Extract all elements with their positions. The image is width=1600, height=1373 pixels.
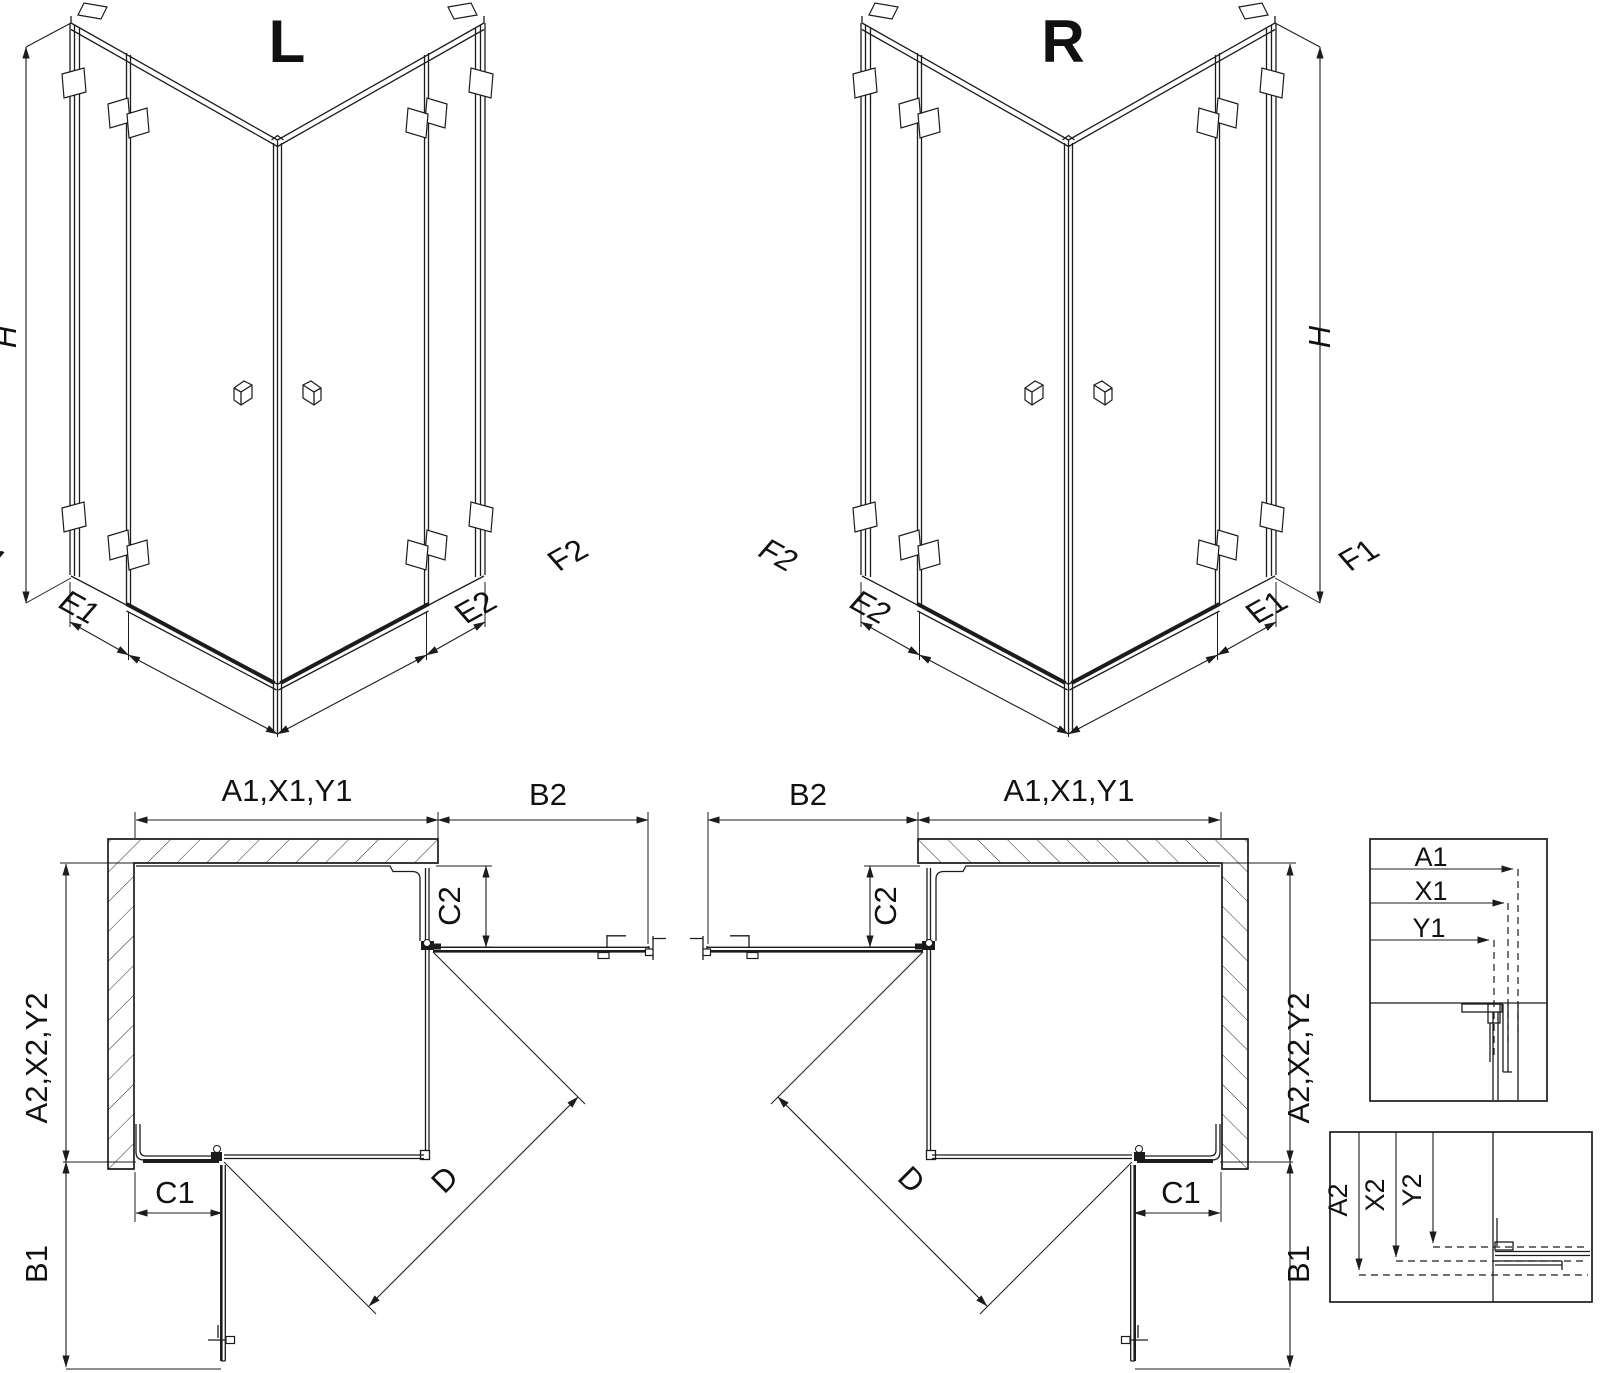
height-dim-label: H — [0, 325, 23, 348]
dim-e2: E2 — [842, 585, 898, 630]
detail-dim-a2: A2 — [1323, 1183, 1353, 1216]
dim-b2: B2 — [789, 777, 827, 812]
dim-f1: F1 — [0, 533, 15, 577]
dim-e1: E1 — [1238, 585, 1294, 630]
detail-dim-x2: X2 — [1360, 1178, 1390, 1211]
dim-b1: B1 — [1281, 1245, 1316, 1283]
plan-view-left: A1,X1,Y1 B2 C2 A2,X2,Y2 C1 B1 D — [19, 773, 666, 1369]
dim-c2: C2 — [432, 886, 467, 926]
dim-f1: F1 — [1331, 533, 1386, 577]
dim-d: D — [891, 1159, 932, 1200]
dim-c1: C1 — [155, 1175, 195, 1210]
iso-view-left: L H F1 E1 E2 F2 — [0, 3, 595, 737]
detail-dim-y1: Y1 — [1412, 913, 1445, 943]
dim-d: D — [424, 1159, 465, 1200]
detail-dim-a1: A1 — [1414, 842, 1447, 872]
detail-view-bottom: A2 X2 Y2 — [1323, 1132, 1592, 1302]
dim-a2x2y2: A2,X2,Y2 — [19, 993, 54, 1124]
technical-drawing-canvas: L H F1 E1 E2 F2 R H F2 E2 E1 F1 A1,X1,Y1… — [0, 0, 1600, 1373]
height-dim-label: H — [1302, 325, 1337, 348]
dim-c2: C2 — [868, 886, 903, 926]
dim-f2: F2 — [751, 533, 806, 577]
dim-f2: F2 — [540, 533, 595, 577]
detail-view-top: A1 X1 Y1 — [1370, 839, 1547, 1101]
dim-b2: B2 — [529, 777, 567, 812]
plan-view-right: A1,X1,Y1 B2 C2 A2,X2,Y2 C1 B1 D — [690, 773, 1316, 1369]
iso-view-right: R H F2 E2 E1 F1 — [751, 3, 1386, 737]
drawing-sheet: L H F1 E1 E2 F2 R H F2 E2 E1 F1 A1,X1,Y1… — [0, 0, 1600, 1373]
dim-e2: E2 — [447, 585, 503, 630]
dim-a1x1y1: A1,X1,Y1 — [222, 773, 353, 808]
variant-label-left: L — [269, 8, 306, 75]
detail-dim-x1: X1 — [1414, 876, 1447, 906]
dim-a2x2y2: A2,X2,Y2 — [1281, 993, 1316, 1124]
dim-a1x1y1: A1,X1,Y1 — [1004, 773, 1135, 808]
dim-c1: C1 — [1161, 1175, 1201, 1210]
dim-b1: B1 — [19, 1245, 54, 1283]
variant-label-right: R — [1041, 8, 1084, 75]
detail-dim-y2: Y2 — [1397, 1173, 1427, 1206]
dim-e1: E1 — [51, 585, 107, 630]
